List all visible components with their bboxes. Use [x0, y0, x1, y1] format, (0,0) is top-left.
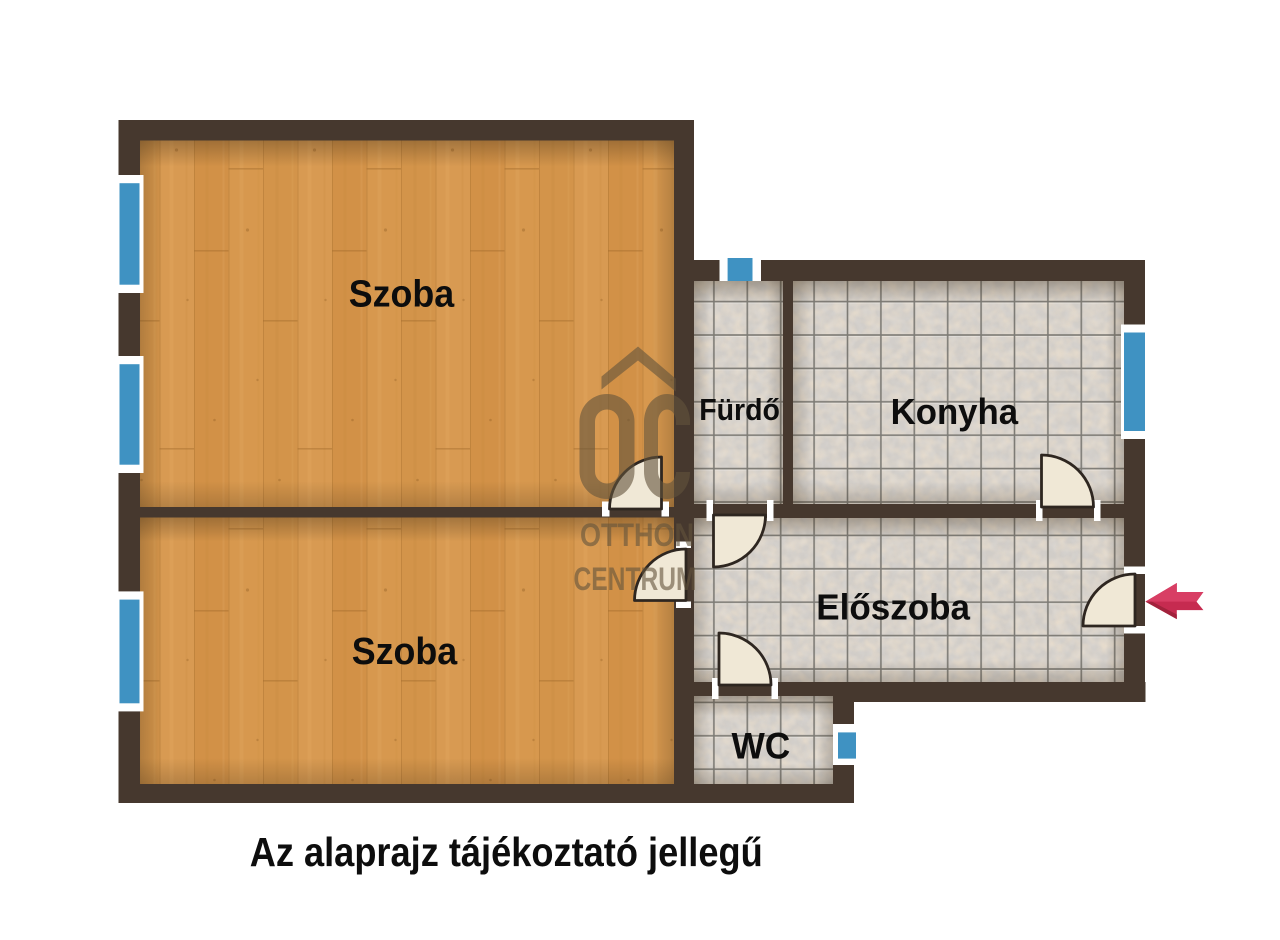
svg-text:Szoba: Szoba [349, 273, 455, 315]
svg-text:Konyha: Konyha [891, 391, 1019, 432]
svg-text:Az alaprajz tájékoztató jelleg: Az alaprajz tájékoztató jellegű [250, 829, 763, 875]
svg-text:Előszoba: Előszoba [816, 587, 971, 628]
svg-text:Fürdő: Fürdő [699, 392, 780, 427]
svg-text:Szoba: Szoba [352, 631, 458, 673]
svg-text:WC: WC [732, 726, 791, 767]
